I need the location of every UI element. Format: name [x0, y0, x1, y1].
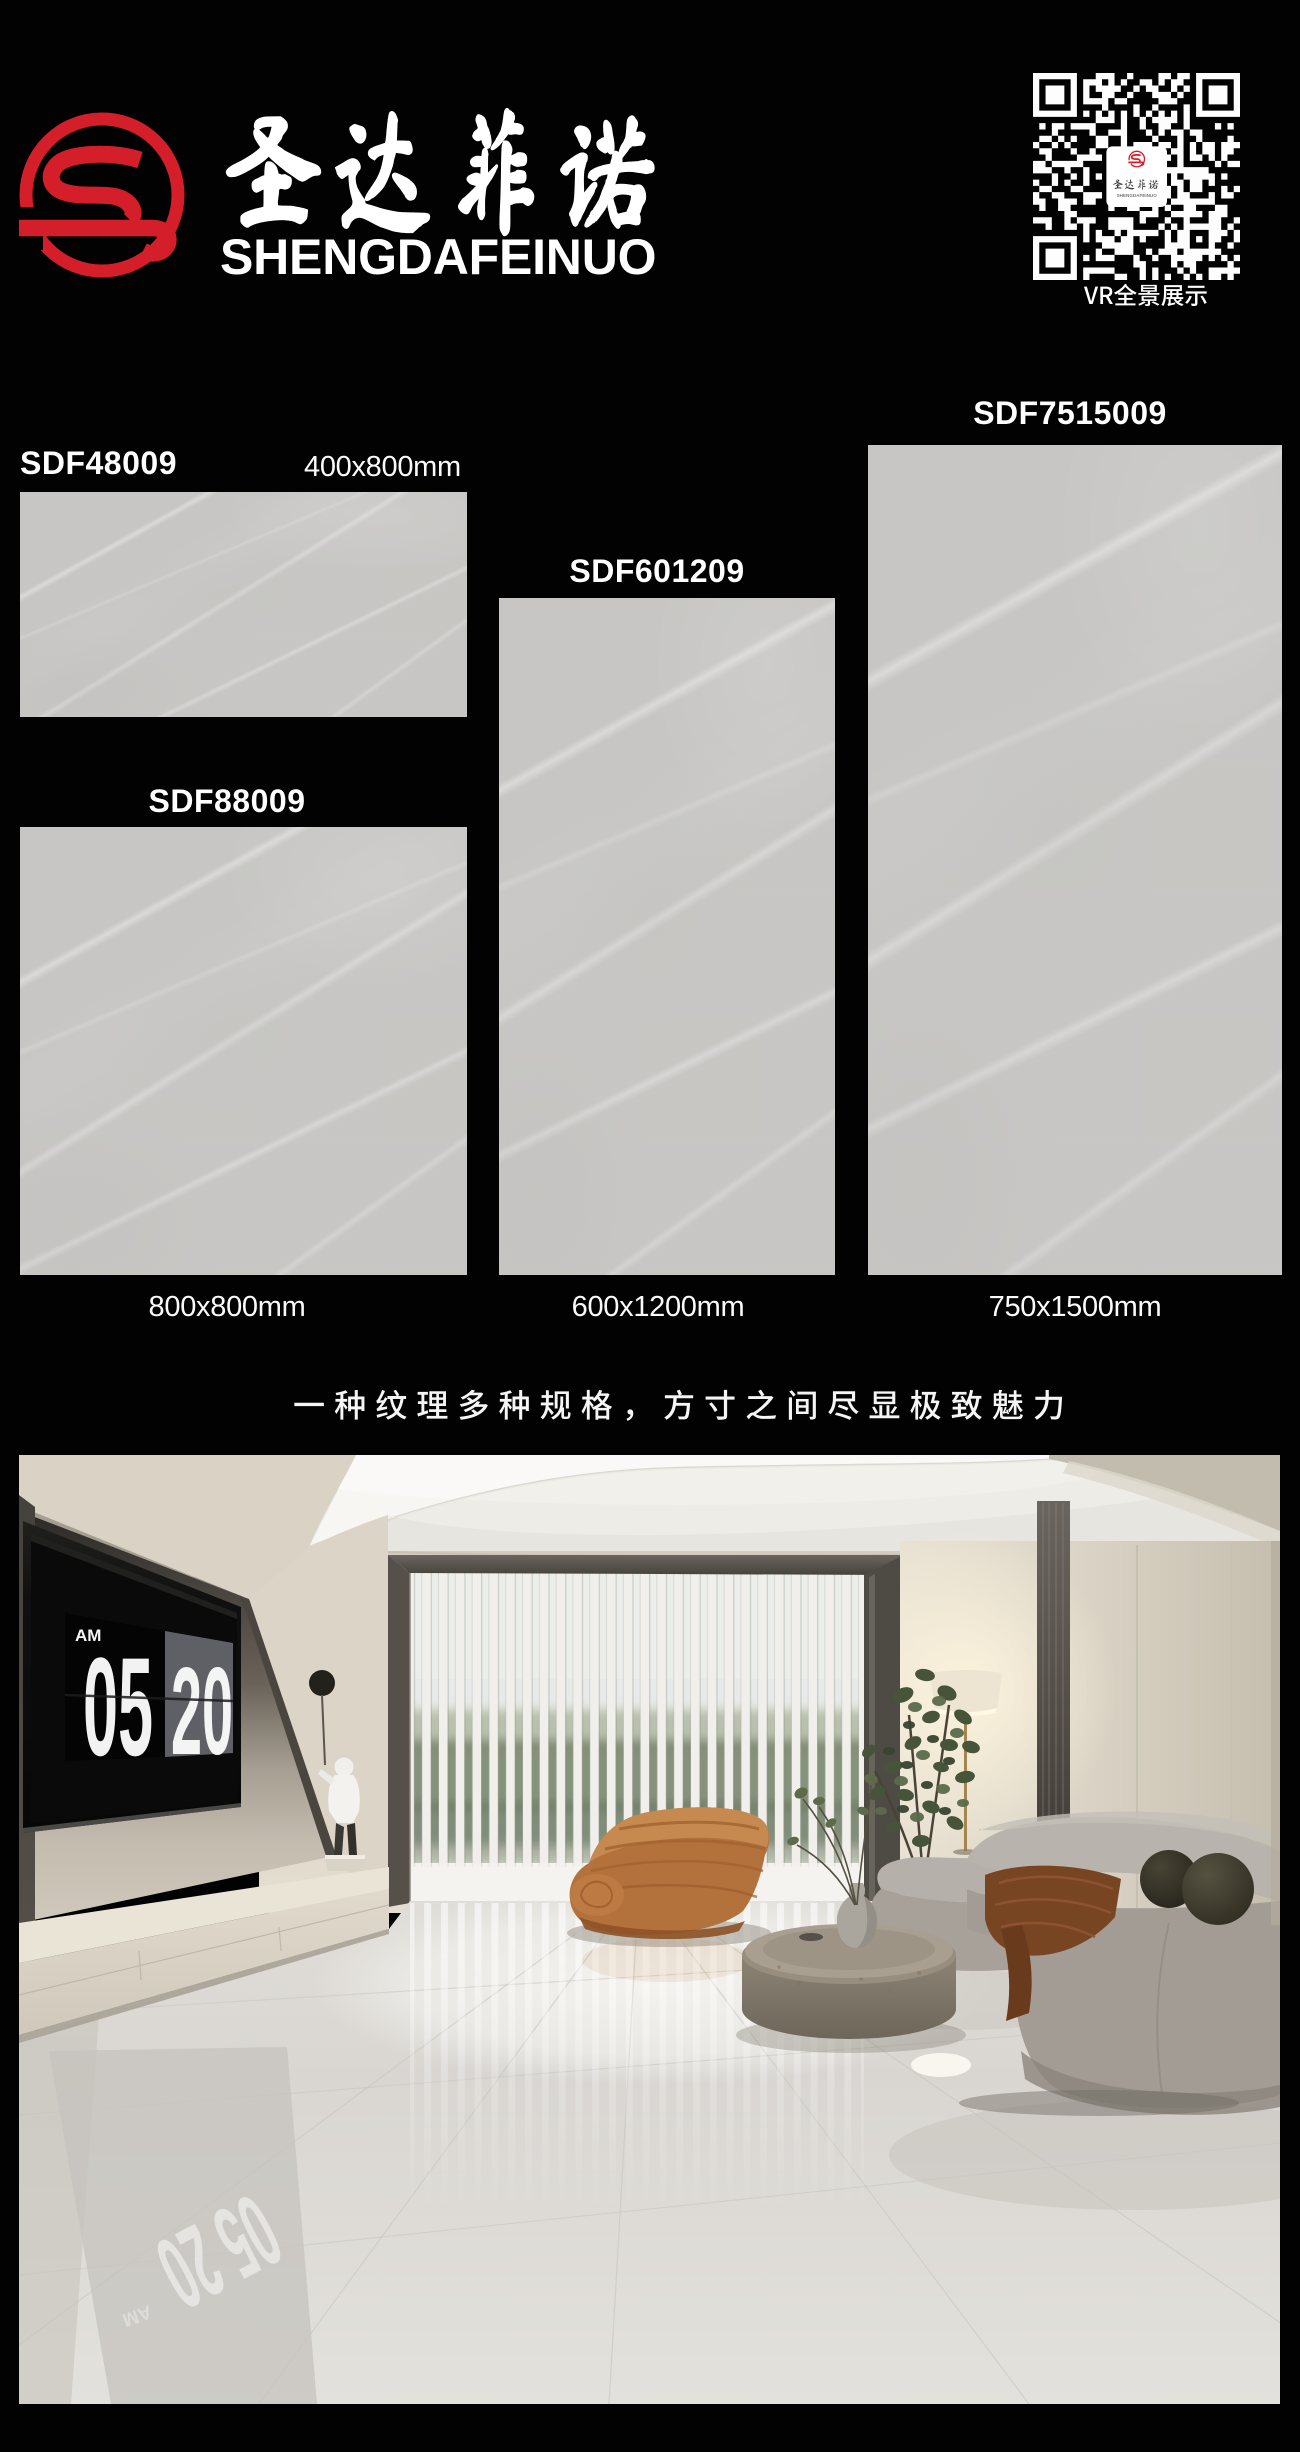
svg-text:05: 05 — [83, 1630, 153, 1786]
svg-text:SHENGDAFEINUO: SHENGDAFEINUO — [1117, 193, 1158, 198]
svg-text:20: 20 — [171, 1643, 233, 1781]
